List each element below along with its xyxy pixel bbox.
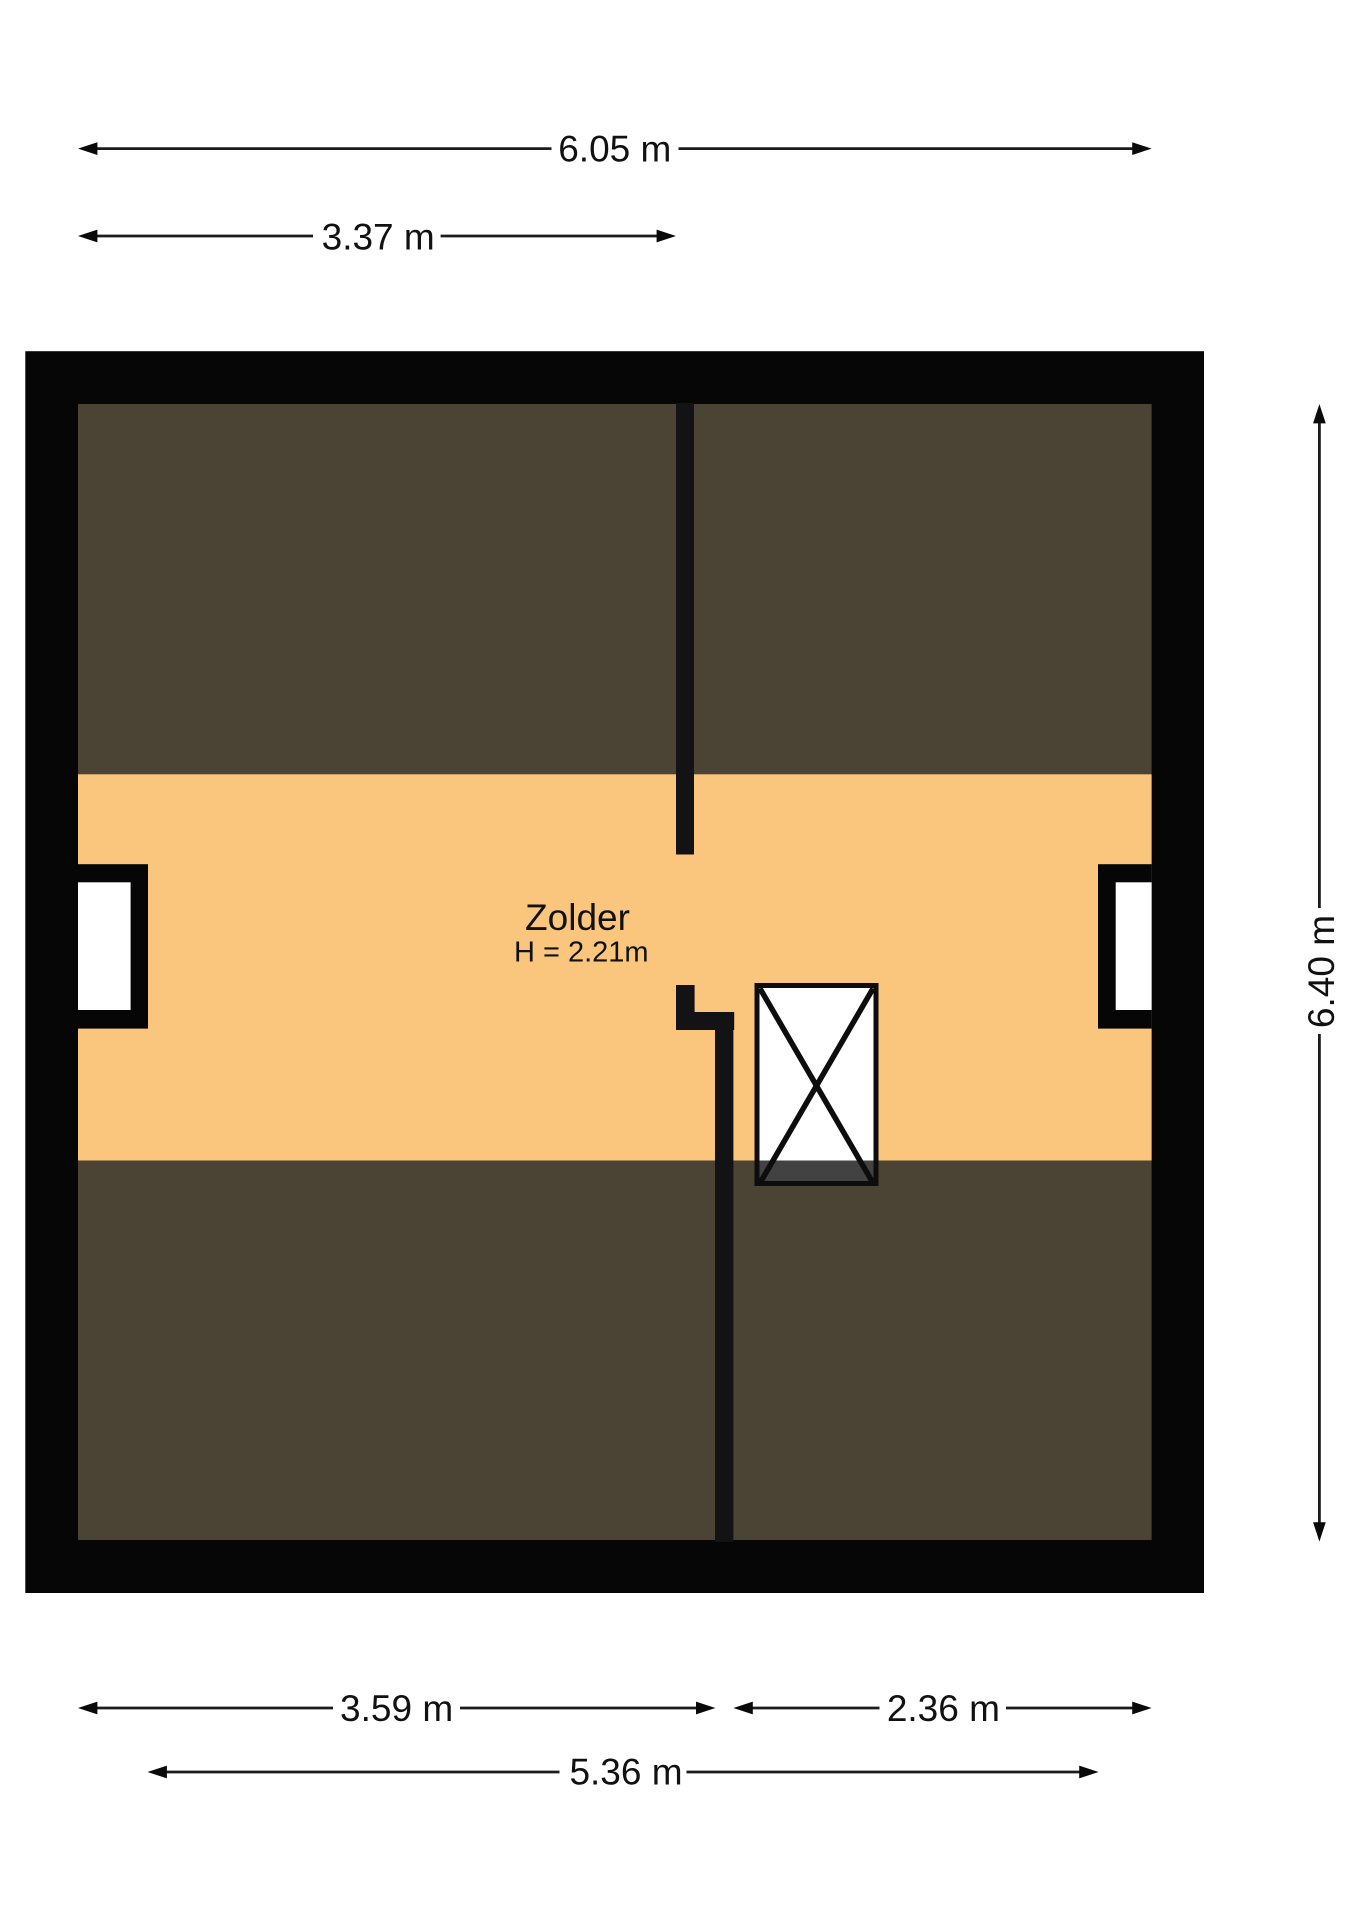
svg-text:5.36 m: 5.36 m: [569, 1751, 682, 1792]
svg-text:3.37 m: 3.37 m: [322, 216, 435, 257]
svg-text:H = 2.21m: H = 2.21m: [514, 937, 649, 969]
svg-text:6.05 m: 6.05 m: [558, 129, 671, 170]
svg-text:Zolder: Zolder: [525, 897, 630, 938]
svg-text:2.36 m: 2.36 m: [887, 1688, 1000, 1729]
svg-text:3.59 m: 3.59 m: [340, 1688, 453, 1729]
svg-text:6.40 m: 6.40 m: [1301, 915, 1342, 1028]
